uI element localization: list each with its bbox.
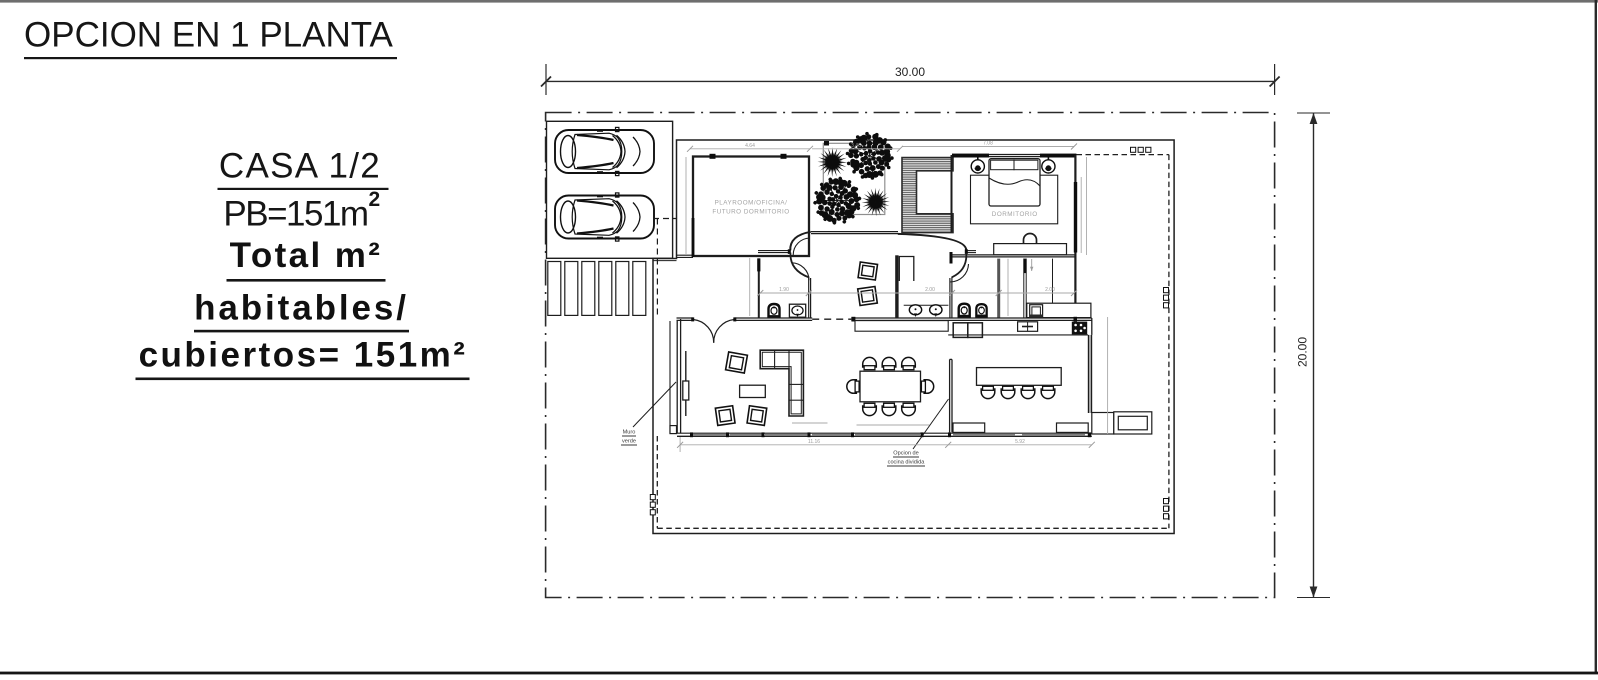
svg-text:CASA 1/2: CASA 1/2 bbox=[219, 147, 381, 186]
svg-text:20.00: 20.00 bbox=[1296, 337, 1310, 367]
svg-text:PLAYROOM/OFICINA/: PLAYROOM/OFICINA/ bbox=[715, 200, 788, 207]
svg-text:DORMITORIO: DORMITORIO bbox=[992, 211, 1038, 218]
svg-text:cocina dividida: cocina dividida bbox=[888, 460, 926, 466]
svg-text:30.00: 30.00 bbox=[895, 65, 925, 79]
svg-text:OPCION EN 1 PLANTA: OPCION EN 1 PLANTA bbox=[24, 16, 394, 55]
svg-text:cubiertos= 151m²: cubiertos= 151m² bbox=[139, 336, 468, 375]
svg-text:4.64: 4.64 bbox=[745, 143, 755, 149]
svg-text:3.46: 3.46 bbox=[851, 143, 861, 149]
svg-text:FUTURO DORMITORIO: FUTURO DORMITORIO bbox=[712, 209, 789, 216]
svg-text:Opcion de: Opcion de bbox=[893, 451, 919, 457]
svg-text:2.00: 2.00 bbox=[925, 287, 935, 293]
svg-text:Muro: Muro bbox=[623, 430, 636, 436]
svg-text:5.92: 5.92 bbox=[1015, 439, 1025, 445]
svg-text:2.00: 2.00 bbox=[1045, 287, 1055, 293]
svg-text:7.08: 7.08 bbox=[983, 141, 993, 147]
svg-text:11.16: 11.16 bbox=[808, 439, 820, 445]
svg-text:1.90: 1.90 bbox=[779, 287, 789, 293]
svg-text:Total m²: Total m² bbox=[230, 236, 383, 275]
svg-text:PB=151m: PB=151m bbox=[223, 195, 367, 234]
svg-text:verde: verde bbox=[622, 439, 636, 445]
svg-text:2: 2 bbox=[369, 188, 381, 211]
svg-text:habitables/: habitables/ bbox=[194, 289, 409, 328]
